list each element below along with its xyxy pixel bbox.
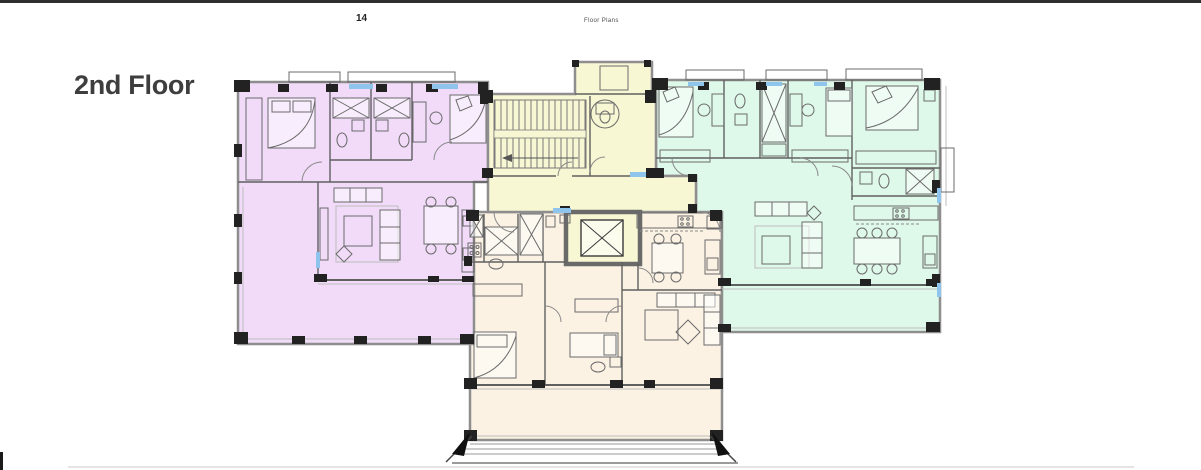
elevator-cab xyxy=(581,220,623,256)
bed xyxy=(268,98,315,148)
dining-table xyxy=(424,206,458,244)
staircase xyxy=(494,100,586,168)
bedroom-left xyxy=(474,332,516,378)
dining-table xyxy=(854,238,900,264)
floor-plan-drawing xyxy=(0,0,1201,470)
page-bottom-rule xyxy=(0,452,1134,470)
dining-table xyxy=(652,243,683,273)
floor-plan-page: 14 Floor Plans 2nd Floor xyxy=(0,0,1201,470)
